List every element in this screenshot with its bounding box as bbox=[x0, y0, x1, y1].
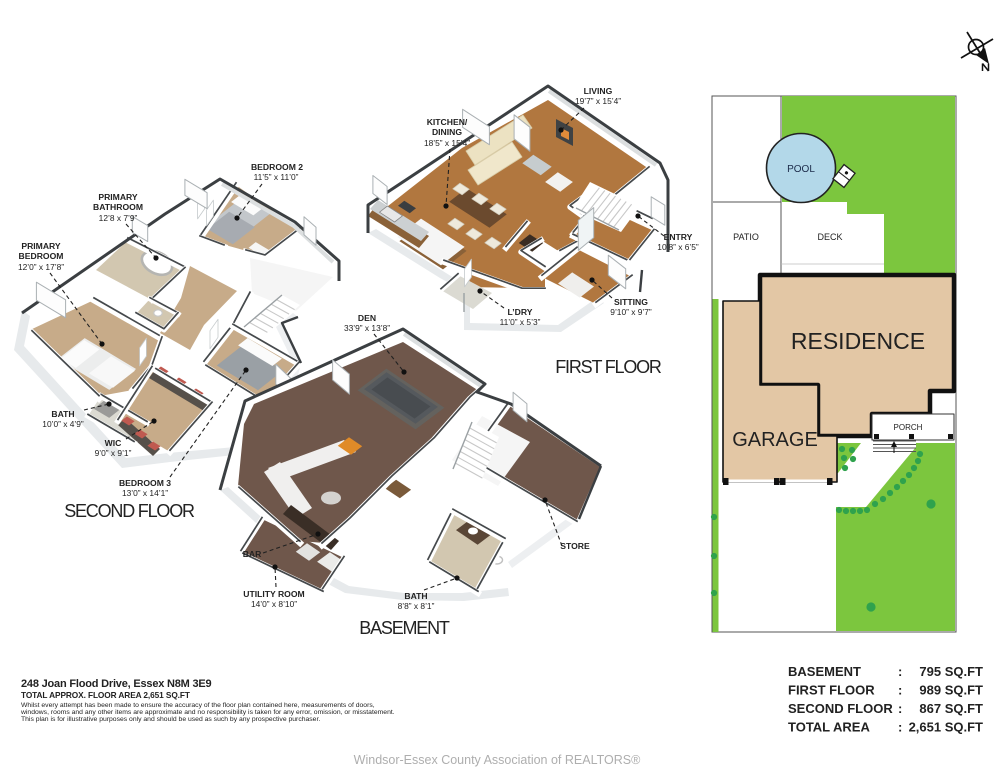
svg-text:12’0” x 17’8”: 12’0” x 17’8” bbox=[18, 262, 64, 272]
svg-text:19’7” x 15’4”: 19’7” x 15’4” bbox=[575, 96, 621, 106]
svg-text:14’0” x 8’10”: 14’0” x 8’10” bbox=[251, 599, 297, 609]
svg-text:BASEMENT: BASEMENT bbox=[359, 618, 450, 638]
svg-text:Whilst every attempt has been: Whilst every attempt has been made to en… bbox=[21, 702, 375, 709]
svg-text:LIVING: LIVING bbox=[584, 86, 613, 96]
svg-text:BEDROOM: BEDROOM bbox=[19, 251, 64, 261]
svg-text:9’0” x 9’1”: 9’0” x 9’1” bbox=[95, 448, 132, 458]
svg-text:Windsor-Essex County Associati: Windsor-Essex County Association of REAL… bbox=[354, 753, 641, 767]
svg-text:L’DRY: L’DRY bbox=[508, 307, 533, 317]
svg-text:795 SQ.FT: 795 SQ.FT bbox=[919, 664, 983, 679]
svg-text:TOTAL APPROX. FLOOR AREA 2,651: TOTAL APPROX. FLOOR AREA 2,651 SQ.FT bbox=[21, 690, 190, 700]
svg-text:WIC: WIC bbox=[105, 438, 122, 448]
svg-text::: : bbox=[898, 701, 902, 716]
svg-text:STORE: STORE bbox=[560, 541, 590, 551]
svg-text:PATIO: PATIO bbox=[733, 232, 759, 242]
svg-text:BATHROOM: BATHROOM bbox=[93, 202, 143, 212]
svg-text:12’8 x 7’9”: 12’8 x 7’9” bbox=[99, 213, 138, 223]
svg-text:DECK: DECK bbox=[817, 232, 842, 242]
svg-text::: : bbox=[898, 720, 902, 735]
svg-text:GARAGE: GARAGE bbox=[732, 429, 818, 451]
svg-text:11’5” x 11’0”: 11’5” x 11’0” bbox=[254, 172, 299, 182]
svg-text:RESIDENCE: RESIDENCE bbox=[791, 328, 925, 354]
svg-text:SECOND FLOOR: SECOND FLOOR bbox=[64, 501, 195, 521]
svg-text:9’10” x 9’7”: 9’10” x 9’7” bbox=[610, 307, 652, 317]
svg-text:BEDROOM 2: BEDROOM 2 bbox=[251, 162, 303, 172]
svg-text::: : bbox=[898, 683, 902, 698]
svg-text:DINING: DINING bbox=[432, 127, 462, 137]
svg-text:This plan is for illustrative: This plan is for illustrative purposes o… bbox=[21, 716, 320, 723]
svg-text:BATH: BATH bbox=[51, 409, 74, 419]
svg-text:KITCHEN/: KITCHEN/ bbox=[427, 117, 468, 127]
svg-text:18’5” x 15’4”: 18’5” x 15’4” bbox=[424, 138, 470, 148]
svg-text:10’8” x 6’5”: 10’8” x 6’5” bbox=[657, 242, 699, 252]
svg-text:13’0” x 14’1”: 13’0” x 14’1” bbox=[122, 488, 168, 498]
svg-text:UTILITY ROOM: UTILITY ROOM bbox=[243, 589, 304, 599]
svg-text:BAR: BAR bbox=[243, 549, 262, 559]
svg-text:248 Joan Flood Drive, Essex N8: 248 Joan Flood Drive, Essex N8M 3E9 bbox=[21, 678, 212, 690]
svg-text:PRIMARY: PRIMARY bbox=[21, 241, 61, 251]
svg-text:PORCH: PORCH bbox=[894, 423, 923, 432]
svg-text:TOTAL AREA: TOTAL AREA bbox=[788, 720, 870, 735]
svg-text:BASEMENT: BASEMENT bbox=[788, 664, 861, 679]
svg-text:8’8” x 8’1”: 8’8” x 8’1” bbox=[398, 601, 435, 611]
svg-text:11’0” x 5’3”: 11’0” x 5’3” bbox=[500, 317, 541, 327]
svg-text:DEN: DEN bbox=[358, 313, 376, 323]
svg-text:867 SQ.FT: 867 SQ.FT bbox=[919, 701, 983, 716]
svg-text:SECOND FLOOR: SECOND FLOOR bbox=[788, 701, 893, 716]
svg-text:FIRST FLOOR: FIRST FLOOR bbox=[555, 357, 662, 377]
svg-text:33’9” x 13’8”: 33’9” x 13’8” bbox=[344, 323, 390, 333]
svg-text:POOL: POOL bbox=[787, 164, 815, 175]
svg-text::: : bbox=[898, 664, 902, 679]
svg-text:10’0” x 4’9”: 10’0” x 4’9” bbox=[42, 419, 84, 429]
svg-text:FIRST FLOOR: FIRST FLOOR bbox=[788, 683, 875, 698]
svg-text:989 SQ.FT: 989 SQ.FT bbox=[919, 683, 983, 698]
svg-text:BEDROOM 3: BEDROOM 3 bbox=[119, 478, 171, 488]
svg-text:ENTRY: ENTRY bbox=[664, 232, 693, 242]
svg-text:BATH: BATH bbox=[404, 591, 427, 601]
svg-text:2,651 SQ.FT: 2,651 SQ.FT bbox=[909, 720, 983, 735]
svg-text:windows, rooms and any other i: windows, rooms and any other items are a… bbox=[20, 709, 395, 716]
svg-text:SITTING: SITTING bbox=[614, 297, 648, 307]
svg-text:PRIMARY: PRIMARY bbox=[98, 192, 138, 202]
